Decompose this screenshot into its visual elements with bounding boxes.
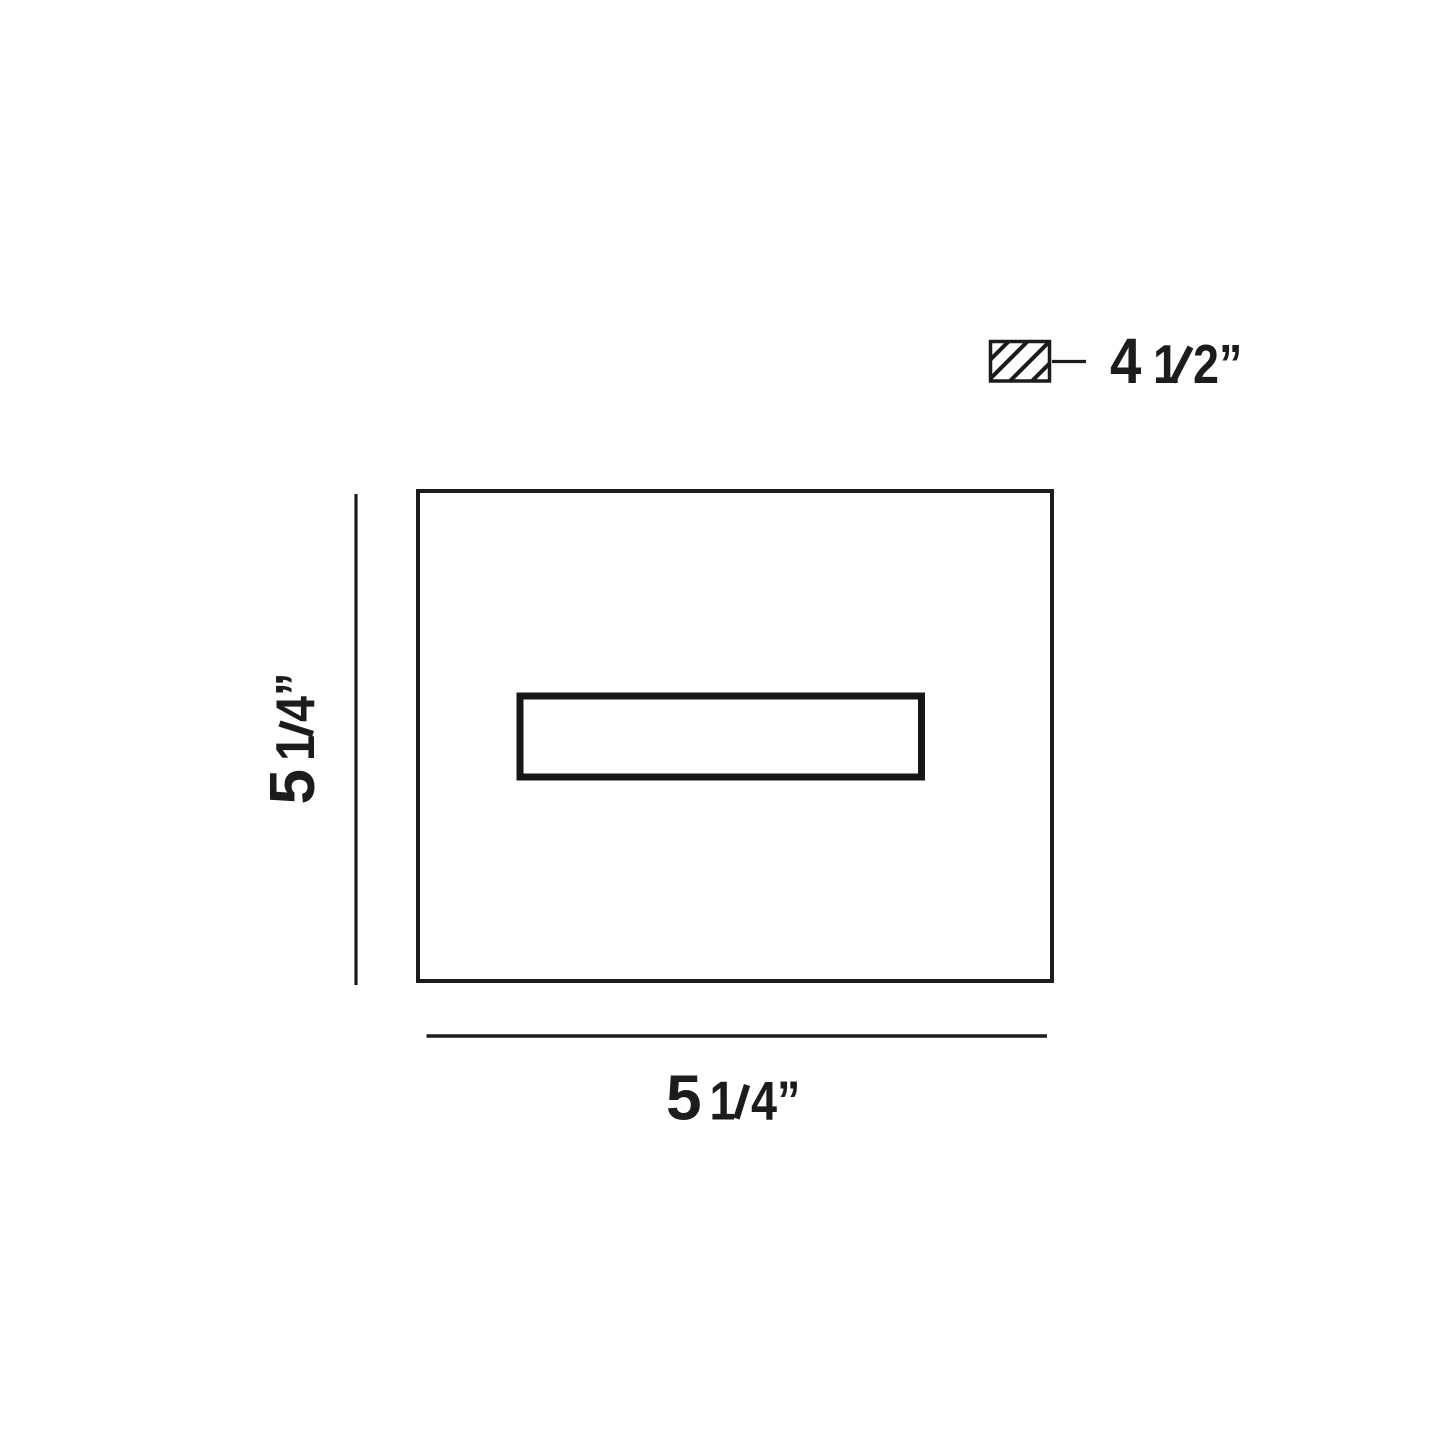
svg-text:1: 1	[264, 735, 325, 761]
svg-text:4: 4	[1110, 325, 1142, 397]
svg-text:4”: 4”	[751, 1070, 800, 1131]
svg-text:4”: 4”	[264, 673, 325, 722]
svg-text:5: 5	[666, 1062, 702, 1134]
svg-text:5: 5	[256, 769, 328, 805]
svg-text:2”: 2”	[1193, 333, 1242, 394]
svg-text:1: 1	[710, 1070, 736, 1131]
svg-text:1: 1	[1153, 333, 1179, 394]
